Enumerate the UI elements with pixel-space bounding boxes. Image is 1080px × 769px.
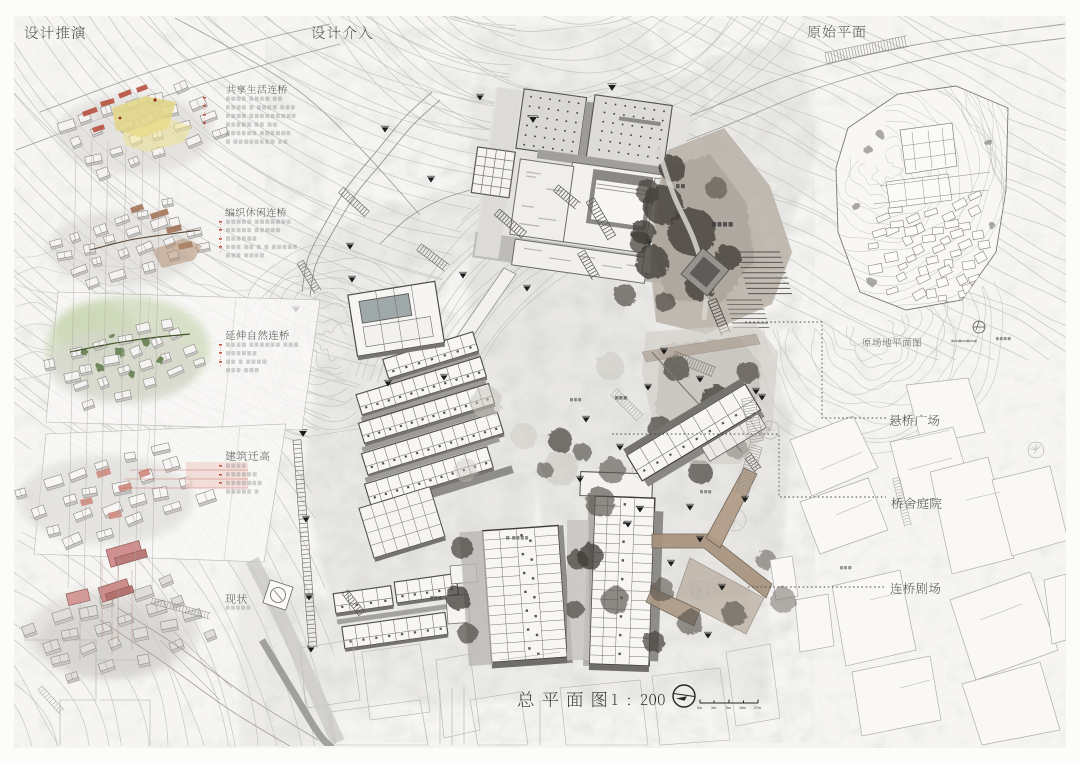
svg-text:3m: 3m <box>711 706 716 710</box>
svg-text:9m: 9m <box>726 706 731 710</box>
svg-text:0m: 0m <box>697 706 702 710</box>
svg-text:27m: 27m <box>754 706 761 710</box>
svg-text:18m: 18m <box>739 706 746 710</box>
